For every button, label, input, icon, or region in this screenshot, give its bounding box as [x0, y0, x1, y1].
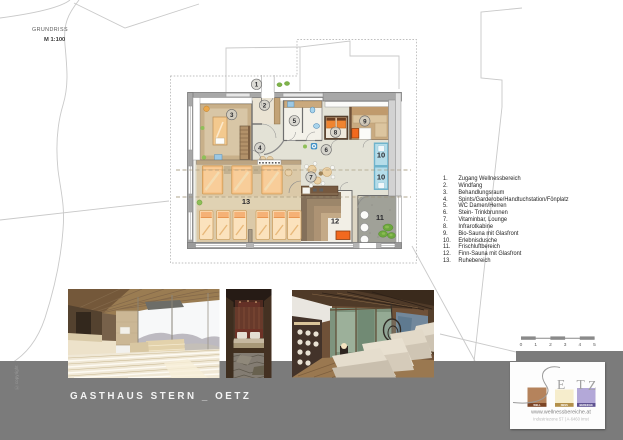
svg-text:T: T	[577, 377, 586, 392]
svg-text:3: 3	[564, 342, 567, 348]
svg-text:3: 3	[230, 112, 234, 119]
svg-text:Z: Z	[588, 378, 596, 393]
svg-text:8: 8	[334, 130, 338, 137]
svg-text:Industriezone 57 | A-6460 Imst: Industriezone 57 | A-6460 Imst	[533, 417, 589, 422]
svg-text:5: 5	[293, 118, 297, 125]
svg-text:10: 10	[377, 151, 385, 160]
svg-text:4: 4	[578, 342, 581, 348]
svg-text:1: 1	[534, 342, 537, 348]
svg-text:0: 0	[520, 342, 523, 348]
svg-text:9: 9	[363, 118, 367, 125]
svg-text:WELL: WELL	[533, 403, 541, 407]
svg-text:6: 6	[324, 147, 328, 154]
svg-text:7: 7	[309, 174, 313, 181]
svg-text:NESS: NESS	[561, 403, 568, 407]
svg-text:10: 10	[377, 173, 385, 182]
svg-text:E: E	[557, 377, 565, 392]
svg-text:www.wellnessbereiche.at: www.wellnessbereiche.at	[530, 410, 591, 416]
svg-text:12: 12	[331, 217, 339, 226]
svg-text:5: 5	[593, 342, 596, 348]
svg-text:2: 2	[549, 342, 552, 348]
svg-text:1: 1	[255, 82, 259, 89]
svg-text:BEREICHE: BEREICHE	[579, 403, 593, 407]
svg-text:2: 2	[263, 103, 267, 110]
svg-text:11: 11	[376, 213, 384, 222]
svg-text:13: 13	[242, 197, 250, 206]
svg-text:4: 4	[258, 145, 262, 152]
